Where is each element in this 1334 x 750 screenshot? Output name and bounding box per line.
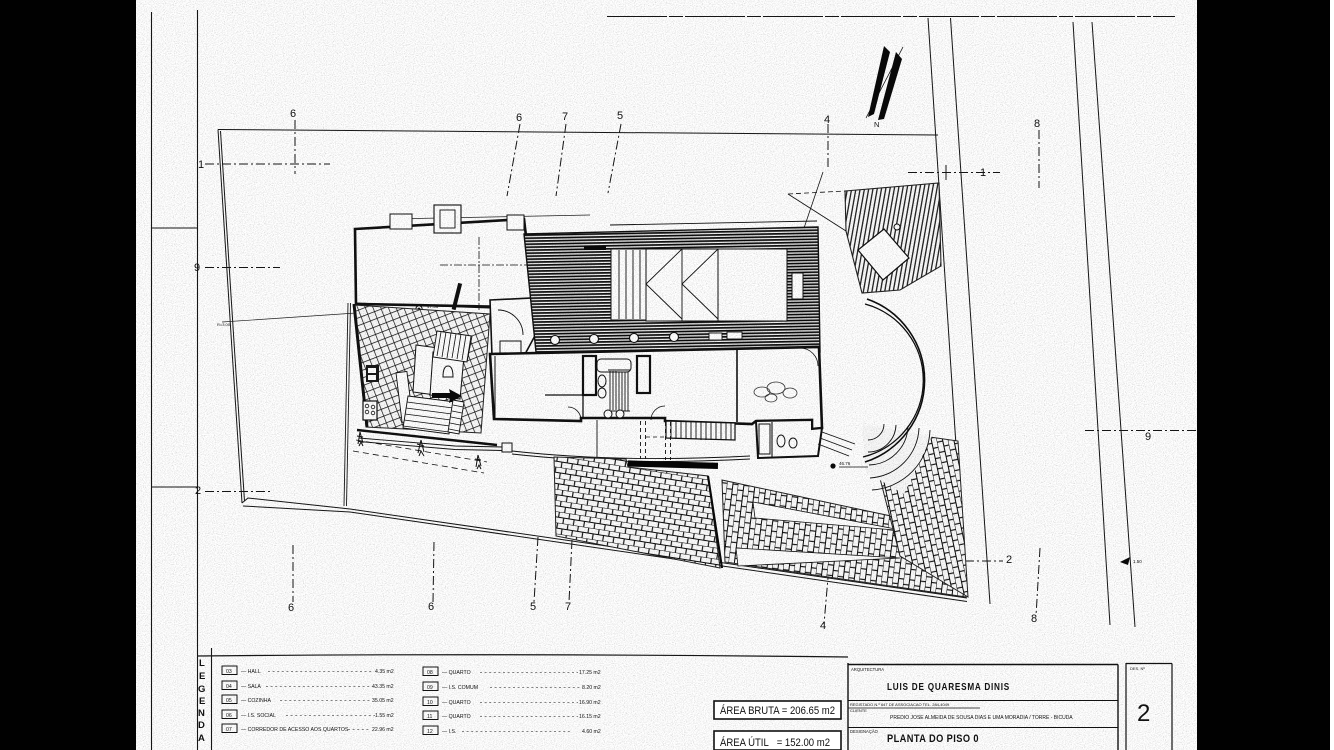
svg-text:07: 07 xyxy=(226,727,232,733)
svg-text:17.25 m2: 17.25 m2 xyxy=(579,670,601,676)
svg-text:DESIGNAÇÃO: DESIGNAÇÃO xyxy=(850,729,879,734)
svg-text:2: 2 xyxy=(1137,700,1150,727)
svg-text:— QUARTO: — QUARTO xyxy=(442,714,471,720)
svg-text:L: L xyxy=(199,658,205,669)
svg-text:4.35 m2: 4.35 m2 xyxy=(375,669,394,675)
svg-text:N: N xyxy=(198,708,205,719)
svg-text:ÁREA BRUTA = 206.65 m2: ÁREA BRUTA = 206.65 m2 xyxy=(720,704,835,717)
svg-text:16.90 m2: 16.90 m2 xyxy=(579,700,601,706)
svg-text:09: 09 xyxy=(427,685,433,691)
svg-text:11: 11 xyxy=(427,714,432,720)
svg-text:E: E xyxy=(199,671,205,682)
svg-text:— COZINHA: — COZINHA xyxy=(241,698,272,704)
svg-text:8.20 m2: 8.20 m2 xyxy=(582,685,601,691)
svg-text:06: 06 xyxy=(226,713,232,719)
svg-text:4.60 m2: 4.60 m2 xyxy=(582,729,601,735)
svg-text:43.35 m2: 43.35 m2 xyxy=(372,684,394,690)
svg-text:— I.S. COMUM: — I.S. COMUM xyxy=(442,685,478,691)
svg-text:12: 12 xyxy=(427,729,433,735)
svg-text:D: D xyxy=(198,720,205,731)
svg-text:PLANTA DO PISO 0: PLANTA DO PISO 0 xyxy=(887,733,979,745)
svg-text:16.15 m2: 16.15 m2 xyxy=(579,714,601,720)
svg-text:A: A xyxy=(198,733,205,744)
svg-text:DES. Nº: DES. Nº xyxy=(1130,666,1145,671)
svg-text:04: 04 xyxy=(226,684,232,690)
svg-text:G: G xyxy=(198,684,205,695)
svg-text:ARQUITECTURA: ARQUITECTURA xyxy=(851,667,884,672)
svg-text:— CORREDOR DE ACESSO AOS QUART: — CORREDOR DE ACESSO AOS QUARTOS xyxy=(241,727,349,733)
svg-text:10: 10 xyxy=(427,700,433,706)
svg-text:LUIS DE QUARESMA DINIS: LUIS DE QUARESMA DINIS xyxy=(887,681,1010,693)
svg-text:— I.S. SOCIAL: — I.S. SOCIAL xyxy=(241,713,276,719)
svg-text:22.96 m2: 22.96 m2 xyxy=(372,727,394,733)
svg-text:— I.S.: — I.S. xyxy=(442,729,456,735)
svg-text:08: 08 xyxy=(427,670,433,676)
svg-text:E: E xyxy=(199,696,205,707)
svg-text:— QUARTO: — QUARTO xyxy=(442,670,471,676)
svg-text:— HALL: — HALL xyxy=(241,669,261,675)
svg-text:05: 05 xyxy=(226,698,232,704)
svg-text:35.05 m2: 35.05 m2 xyxy=(372,698,394,704)
svg-text:PREDIO JOSE ALMEIDA DE SOUSA D: PREDIO JOSE ALMEIDA DE SOUSA DIAS E UMA … xyxy=(890,715,1073,721)
svg-text:— QUARTO: — QUARTO xyxy=(442,700,471,706)
svg-text:ÁREA ÚTIL = 152.00 m2: ÁREA ÚTIL = 152.00 m2 xyxy=(720,736,830,749)
svg-text:— SALA: — SALA xyxy=(241,684,261,690)
svg-text:03: 03 xyxy=(226,669,232,675)
svg-text:1.55 m2: 1.55 m2 xyxy=(375,713,394,719)
svg-text:CLIENTE: CLIENTE xyxy=(850,708,867,713)
svg-text:REGISTADO N.º 647 DE ASSOCI: REGISTADO N.º 647 DE ASSOCIACAO TEL. 284… xyxy=(850,702,950,707)
